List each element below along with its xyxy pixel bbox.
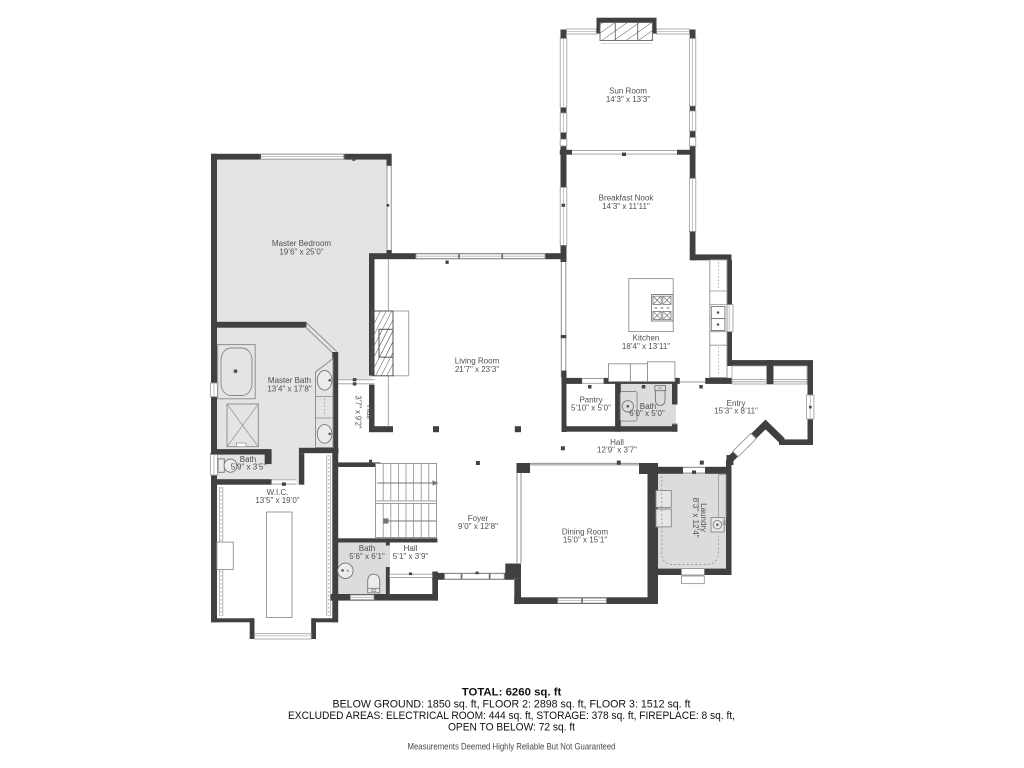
- svg-text:3’7" x 9’2": 3’7" x 9’2": [353, 396, 362, 429]
- svg-text:18’4" x 13’11": 18’4" x 13’11": [622, 342, 670, 351]
- svg-text:BELOW GROUND: 1850 sq. ft, FLO: BELOW GROUND: 1850 sq. ft, FLOOR 2: 2898…: [333, 698, 692, 710]
- svg-text:TOTAL: 6260 sq. ft: TOTAL: 6260 sq. ft: [462, 687, 562, 699]
- svg-text:12’9" x 3’7": 12’9" x 3’7": [597, 446, 637, 455]
- svg-text:6’0" x 5’0": 6’0" x 5’0": [629, 409, 665, 418]
- svg-text:5’10" x 5’0": 5’10" x 5’0": [571, 403, 611, 412]
- svg-text:14’3" x 11’11": 14’3" x 11’11": [602, 202, 650, 211]
- svg-text:5’9" x 3’5": 5’9" x 3’5": [231, 462, 267, 471]
- svg-text:15’3" x 8’11": 15’3" x 8’11": [714, 407, 758, 416]
- svg-text:8’3" x 12’4": 8’3" x 12’4": [691, 498, 700, 538]
- svg-text:19’6" x 25’0": 19’6" x 25’0": [279, 247, 324, 256]
- svg-text:5’1" x 3’9": 5’1" x 3’9": [393, 552, 429, 561]
- svg-text:14’3" x 13’3": 14’3" x 13’3": [606, 95, 651, 104]
- svg-text:13’4" x 17’8": 13’4" x 17’8": [267, 384, 312, 393]
- svg-text:13’5" x 19’0": 13’5" x 19’0": [255, 496, 300, 505]
- svg-text:15’0" x 15’1": 15’0" x 15’1": [563, 535, 608, 544]
- svg-text:Measurements Deemed Highly Rel: Measurements Deemed Highly Reliable But …: [408, 741, 616, 752]
- svg-text:OPEN TO BELOW: 72 sq. ft: OPEN TO BELOW: 72 sq. ft: [448, 721, 576, 733]
- svg-text:EXCLUDED AREAS: ELECTRICAL ROO: EXCLUDED AREAS: ELECTRICAL ROOM: 444 sq.…: [288, 710, 735, 722]
- svg-text:21’7" x 23’3": 21’7" x 23’3": [455, 365, 500, 374]
- svg-text:9’0" x 12’8": 9’0" x 12’8": [458, 522, 498, 531]
- svg-text:5’6" x 6’1": 5’6" x 6’1": [349, 552, 385, 561]
- svg-text:Hall: Hall: [365, 405, 374, 419]
